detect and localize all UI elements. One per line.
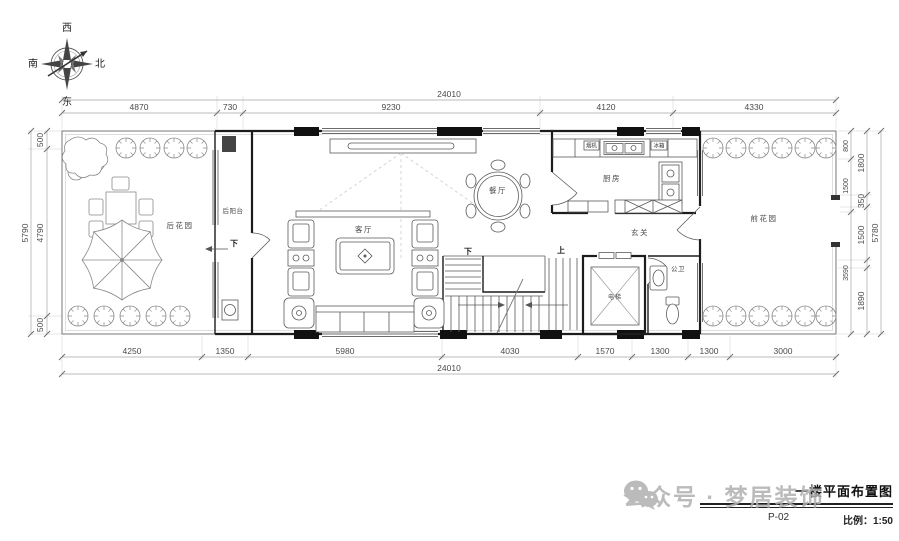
- room-label-kitchen: 厨房: [603, 173, 621, 183]
- tree-icon: [164, 138, 184, 158]
- tree-icon: [68, 306, 88, 326]
- dimension-top: 24010 4870 730 9230 4120 4330: [59, 89, 839, 129]
- dining-table: [474, 172, 522, 220]
- tree-icon: [170, 306, 190, 326]
- dim-label: 24010: [437, 363, 461, 373]
- patio-umbrella: [82, 220, 162, 300]
- staircase: 下 上: [445, 245, 577, 333]
- kitchen-lower-cabinets: [568, 200, 682, 213]
- down-arrow-icon: [205, 246, 212, 252]
- dim-label: 800: [843, 140, 850, 152]
- tree-icon: [772, 306, 792, 326]
- coffee-table: [336, 238, 394, 274]
- tree-icon: [94, 306, 114, 326]
- compass-east-label: 东: [62, 95, 72, 108]
- hood-label: 烟机: [586, 142, 598, 150]
- shrub-sketch: [62, 137, 108, 180]
- tree-icon: [795, 138, 815, 158]
- sofa-back-console: [296, 211, 430, 217]
- dim-label: 1890: [856, 291, 866, 310]
- tree-icon: [116, 138, 136, 158]
- stove: [604, 142, 644, 155]
- dim-label: 1570: [596, 346, 615, 356]
- toilet: [666, 297, 679, 324]
- bathroom-sink: [650, 266, 667, 290]
- dim-label: 1800: [856, 153, 866, 172]
- armchairs-left: [288, 220, 314, 296]
- stair-up-label: 上: [557, 245, 565, 255]
- dim-label: 1300: [651, 346, 670, 356]
- dim-label: 4250: [123, 346, 142, 356]
- dim-label: 4870: [130, 102, 149, 112]
- dimension-bottom: 4250 1350 5980 4030 1570 1300 1300 3000 …: [59, 336, 839, 378]
- dim-label: 4120: [597, 102, 616, 112]
- dim-label: 4030: [501, 346, 520, 356]
- dim-label: 1350: [216, 346, 235, 356]
- floor-plan-drawing: 西 北 东 南 24010 4870 730 9230 4120 4330 42…: [0, 0, 899, 541]
- room-label-back-garden: 后花园: [167, 220, 194, 230]
- door-living-to-balcony: [252, 233, 270, 258]
- garden-trees-bottom-left: [68, 306, 190, 326]
- tree-icon: [146, 306, 166, 326]
- front-garden: 前花园: [703, 138, 836, 326]
- room-label-back-balcony: 后阳台: [223, 206, 244, 215]
- entry-hall: 玄关: [631, 227, 649, 237]
- room-label-front-garden: 前花园: [751, 213, 778, 223]
- room-label-living: 客厅: [355, 224, 373, 234]
- balcony-down-label: 下: [230, 239, 238, 248]
- fridge-label: 冰箱: [653, 142, 665, 150]
- living-room: 客厅: [284, 139, 484, 332]
- corner-table-right: [414, 298, 444, 328]
- title-rule: [700, 503, 893, 505]
- tree-icon: [795, 306, 815, 326]
- sheet-number: P-02: [768, 512, 789, 527]
- room-label-elevator: 电梯: [608, 293, 622, 301]
- stair-arrow-icon: [498, 302, 505, 308]
- bathroom: 公卫: [650, 265, 685, 324]
- tree-icon: [749, 306, 769, 326]
- tree-icon: [816, 306, 836, 326]
- compass-south-label: 南: [28, 57, 38, 70]
- dim-label: 24010: [437, 89, 461, 99]
- back-garden: 后花园: [62, 137, 207, 326]
- compass-rose: 西 北 东 南: [28, 23, 105, 108]
- garden-trees-bottom-right: [703, 306, 836, 326]
- room-label-dining: 餐厅: [489, 186, 507, 195]
- armchairs-right: [412, 220, 438, 296]
- dim-label: 3590: [843, 265, 850, 281]
- compass-west-label: 西: [62, 23, 72, 34]
- dim-label: 5980: [336, 346, 355, 356]
- dim-label: 1500: [843, 178, 850, 194]
- tree-icon: [749, 138, 769, 158]
- dim-label: 5780: [870, 223, 880, 242]
- title-block: 一楼平面布置图 P-02 比例：1:50: [700, 481, 893, 527]
- gate-opening: [830, 198, 840, 244]
- tree-icon: [140, 138, 160, 158]
- stair-arrow-icon: [525, 302, 532, 308]
- water-heater: [222, 136, 236, 152]
- long-sofa: [316, 306, 414, 332]
- dimension-right: 800 1500 3590 1800 350 1500 1890 5780: [838, 128, 886, 337]
- compass-north-label: 北: [95, 58, 105, 70]
- dim-label: 1300: [700, 346, 719, 356]
- dimension-left: 500 4790 500 5790: [20, 128, 62, 337]
- dim-label: 4790: [35, 223, 45, 242]
- back-balcony: 后阳台 下: [205, 136, 244, 320]
- room-label-entry: 玄关: [631, 227, 649, 237]
- door-kitchen: [552, 172, 577, 205]
- tree-icon: [816, 138, 836, 158]
- dim-label: 730: [223, 102, 237, 112]
- elevator: 电梯: [583, 251, 645, 334]
- tree-icon: [772, 138, 792, 158]
- dining-room: 餐厅: [466, 160, 530, 232]
- dim-label: 3000: [774, 346, 793, 356]
- drawing-scale: 比例：1:50: [843, 512, 893, 527]
- garden-trees-top-left: [116, 138, 207, 158]
- dim-label: 4330: [745, 102, 764, 112]
- stair-down-label: 下: [464, 247, 472, 256]
- dim-label: 9230: [382, 102, 401, 112]
- dim-label: 5790: [20, 223, 30, 242]
- room-label-bath: 公卫: [671, 265, 685, 273]
- tv: [348, 143, 454, 149]
- dim-label: 350: [856, 194, 866, 208]
- corner-table-left: [284, 298, 314, 328]
- kitchen: 烟机 冰箱 厨房: [553, 139, 697, 213]
- floor-plan-sheet: 西 北 东 南 24010 4870 730 9230 4120 4330 42…: [0, 0, 899, 541]
- dim-label: 500: [35, 133, 45, 147]
- dim-label: 500: [35, 318, 45, 332]
- garden-trees-top-right: [703, 138, 836, 158]
- drawing-title: 一楼平面布置图: [700, 481, 893, 500]
- title-rule: [700, 507, 893, 508]
- tree-icon: [187, 138, 207, 158]
- tree-icon: [120, 306, 140, 326]
- tree-icon: [703, 306, 723, 326]
- dim-label: 1500: [856, 225, 866, 244]
- tall-appliance-unit: [659, 162, 682, 204]
- tree-icon: [726, 138, 746, 158]
- tree-icon: [703, 138, 723, 158]
- tree-icon: [726, 306, 746, 326]
